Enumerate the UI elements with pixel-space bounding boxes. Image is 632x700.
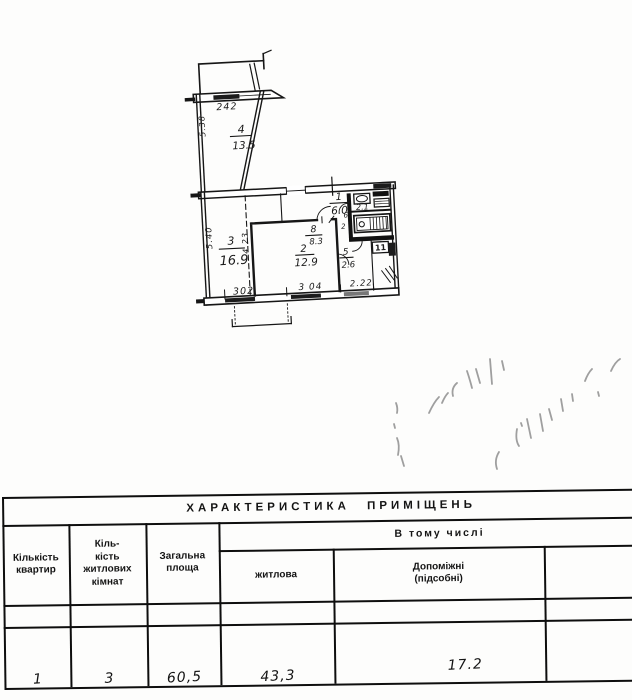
col-header-rooms: Кіль- кість житлових кімнат — [68, 523, 146, 604]
kitchen-number: 8 — [310, 224, 317, 235]
value-rooms: 3 — [69, 624, 149, 697]
door-mark-b: 2 — [341, 223, 346, 231]
col-header-total-area: Загальна площа — [145, 522, 219, 603]
pencil-scribbles — [394, 359, 620, 469]
shelf-symbol — [373, 191, 390, 207]
balcony-outline — [198, 50, 273, 95]
value-living: 43,3 — [219, 621, 336, 695]
balcony-width-label: 242 — [216, 101, 238, 113]
room4-area: 13.5 — [232, 139, 256, 152]
value-total-area: 60,5 — [146, 623, 222, 695]
room2-walls — [250, 206, 339, 295]
value-apartments: 1 — [3, 625, 72, 697]
col-header-apartments: Кількість квартир — [2, 524, 69, 605]
hall-divider — [281, 194, 282, 221]
bathtub-symbol — [354, 214, 391, 233]
col-header-living: житлова — [219, 549, 334, 602]
dim-222: 2.22 — [350, 278, 373, 289]
floor-plan-canvas: 242 5.38 4 13.5 5.40 3 16.9 1 6.0 8 8.3 … — [0, 0, 632, 500]
room2-area: 12.9 — [294, 256, 318, 269]
hall-number: 1 — [335, 192, 342, 203]
wc-area: 2.6 — [341, 260, 356, 271]
kitchen-area: 8.3 — [309, 237, 323, 248]
scanned-document: 242 5.38 4 13.5 5.40 3 16.9 1 6.0 8 8.3 … — [0, 0, 632, 700]
room2-number: 2 — [300, 244, 307, 255]
bath-area: 2.1 — [356, 202, 369, 212]
dim-304: 3 04 — [298, 282, 323, 293]
value-auxiliary: 17.2 — [333, 616, 547, 687]
wc-number: 5 — [343, 247, 350, 257]
room2-depth-label: 4.23 — [241, 232, 251, 254]
room4-number: 4 — [237, 123, 245, 136]
room3-area: 16.9 — [219, 253, 249, 269]
box-label: 11 — [375, 243, 387, 253]
room4-depth-label: 5.38 — [197, 115, 207, 137]
characteristics-table: ХАРАКТЕРИСТИКА ПРИМІЩЕНЬ В тому числі Кі… — [2, 488, 632, 690]
room3-depth-label: 5.40 — [204, 226, 215, 249]
room3-number: 3 — [227, 234, 235, 247]
group-header: В тому числі — [218, 516, 632, 550]
dim-302: 302 — [233, 285, 255, 297]
col-header-auxiliary: Допоміжні (підсобні) — [333, 546, 545, 601]
lower-dimension-bracket — [231, 304, 291, 327]
floor-plan: 242 5.38 4 13.5 5.40 3 16.9 1 6.0 8 8.3 … — [184, 44, 402, 328]
